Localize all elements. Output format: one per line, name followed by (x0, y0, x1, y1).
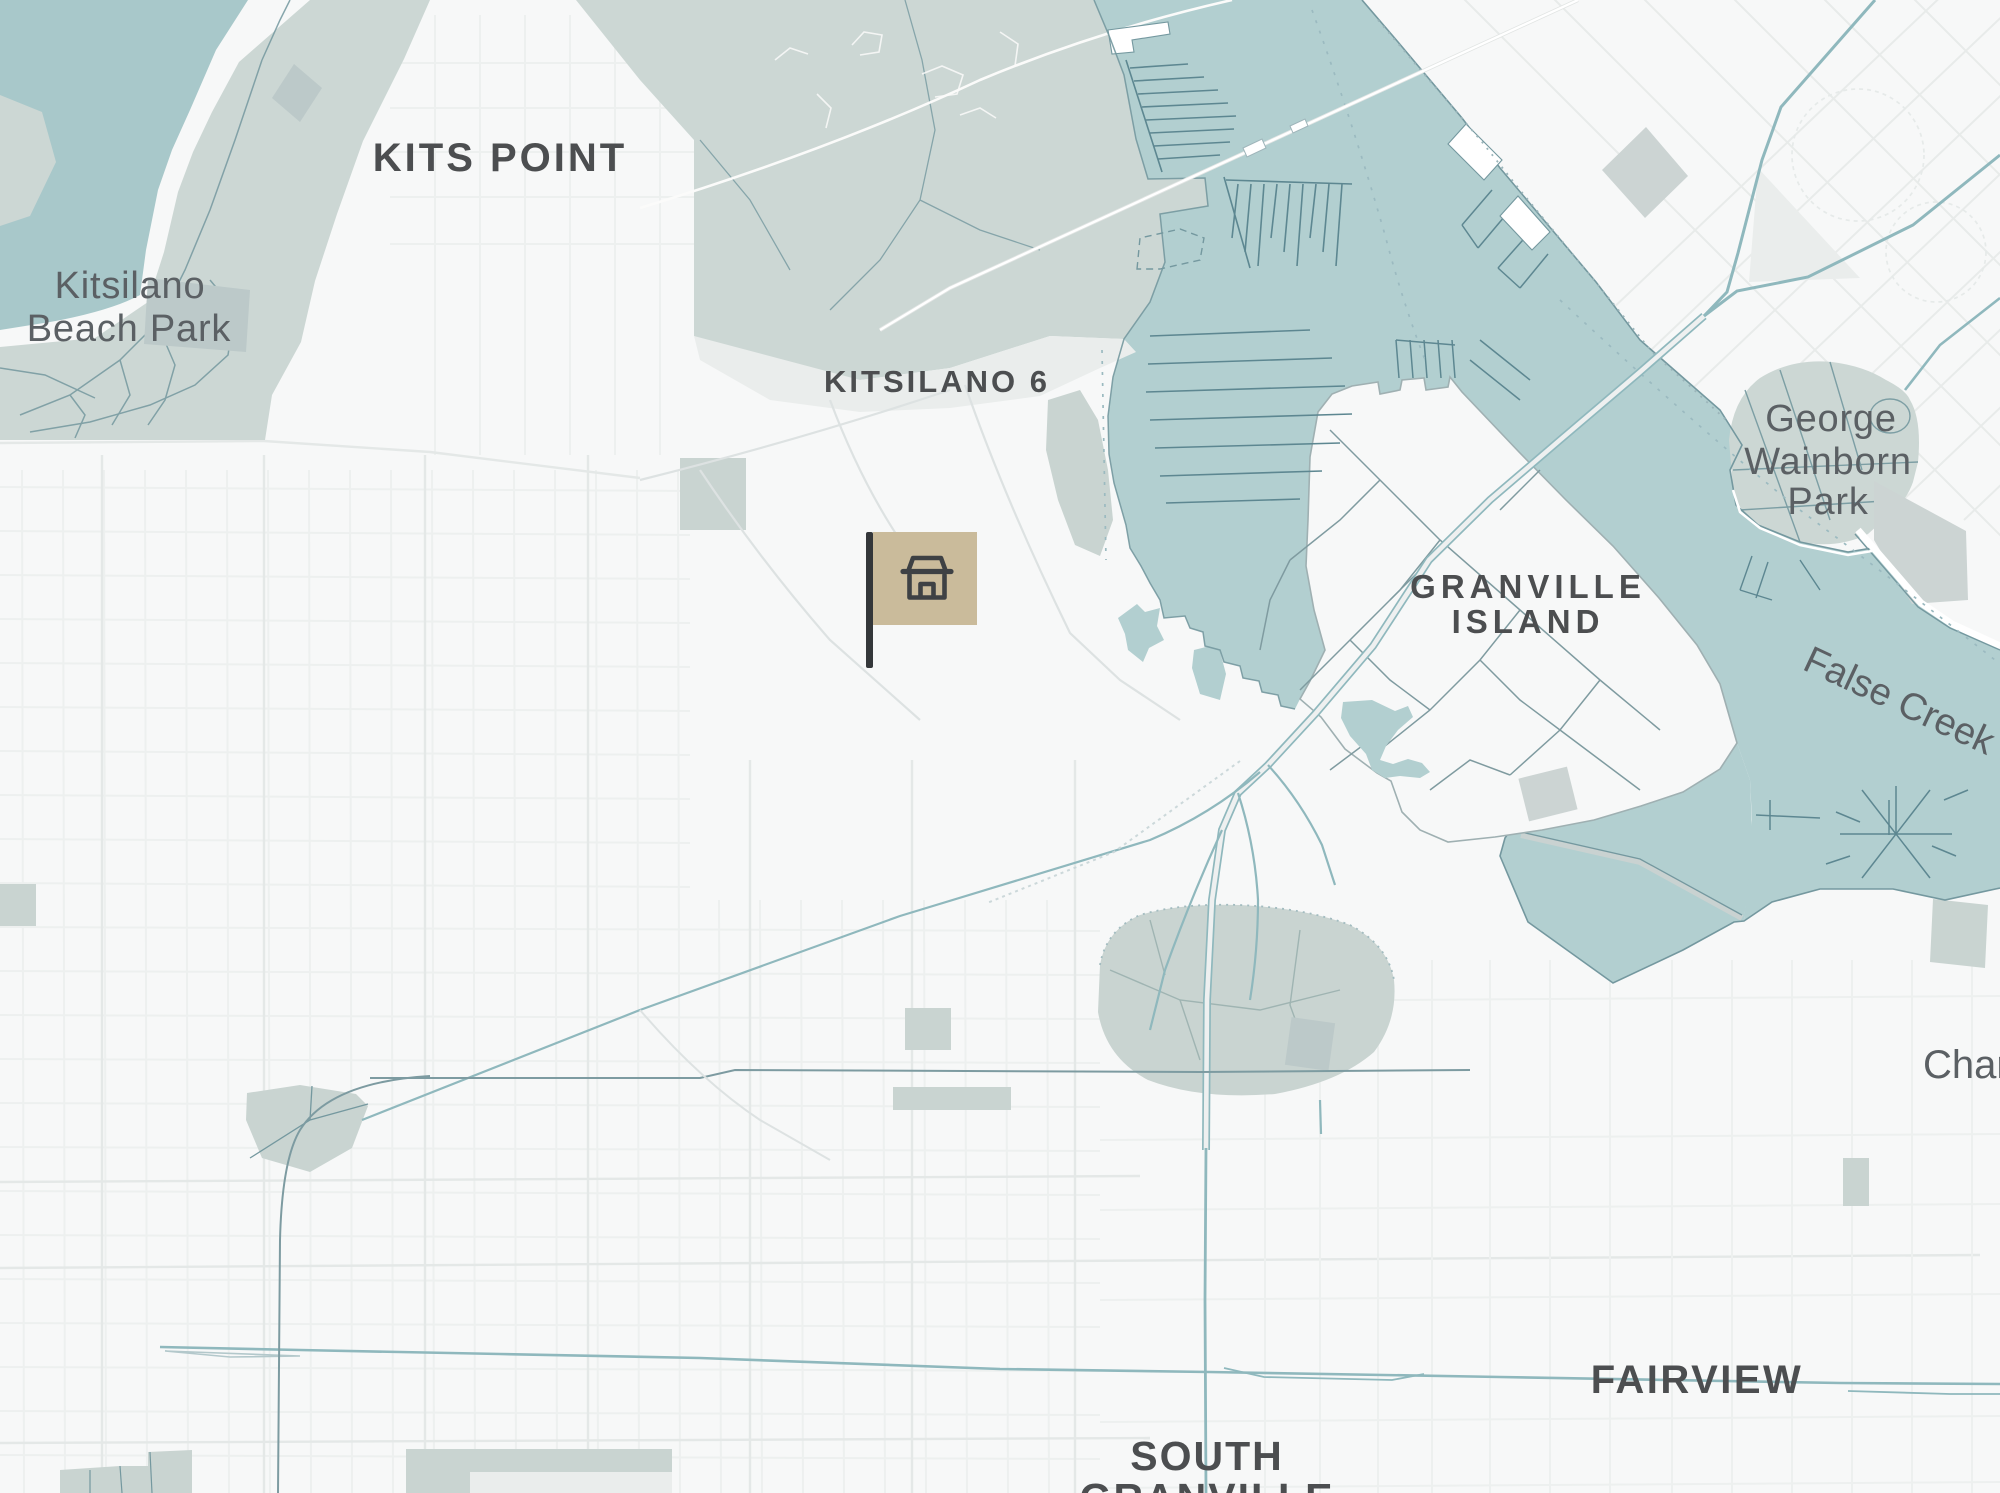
svg-text:George: George (1765, 398, 1897, 440)
svg-text:Kitsilano: Kitsilano (55, 265, 206, 307)
svg-text:ISLAND: ISLAND (1452, 603, 1605, 640)
svg-text:GRANVILLE: GRANVILLE (1080, 1475, 1335, 1493)
svg-text:GRANVILLE: GRANVILLE (1410, 568, 1646, 605)
svg-text:Beach Park: Beach Park (27, 308, 232, 350)
svg-text:Wainborn: Wainborn (1744, 441, 1912, 483)
svg-text:KITSILANO 6: KITSILANO 6 (824, 364, 1050, 399)
svg-text:Charleson: Charleson (1923, 1043, 2000, 1087)
svg-text:SOUTH: SOUTH (1130, 1433, 1284, 1479)
svg-text:FAIRVIEW: FAIRVIEW (1591, 1358, 1804, 1402)
svg-text:Park: Park (1787, 481, 1869, 523)
svg-text:KITS POINT: KITS POINT (373, 136, 627, 180)
